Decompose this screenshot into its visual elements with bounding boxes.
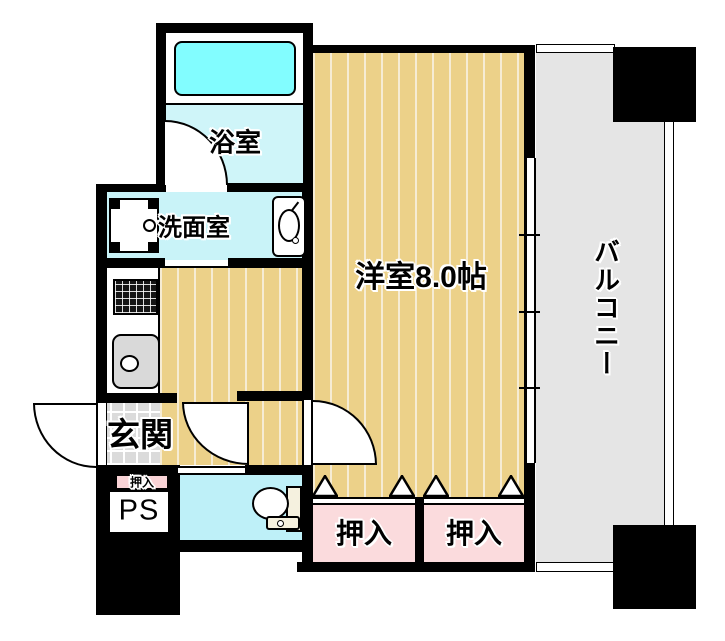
closet-right-label: 押入	[446, 512, 502, 552]
window-tick	[519, 311, 540, 313]
main-room-label: 洋室8.0帖	[355, 252, 487, 296]
hall-closet-label: 押入	[130, 474, 154, 491]
wall-room-right-lower	[524, 463, 535, 572]
wall-bottom	[297, 562, 535, 572]
wall-washroom-bottom-left	[96, 258, 165, 268]
closet-right-door-track	[424, 497, 524, 505]
wall-room-right-upper	[524, 45, 535, 158]
wall-left	[96, 184, 107, 403]
closet-door-triangle	[389, 475, 415, 497]
closet-door-triangle	[423, 475, 449, 497]
balcony-rail-bottom	[536, 562, 615, 572]
gas-stove-icon	[113, 279, 158, 315]
closet-left-label: 押入	[336, 512, 392, 552]
wall-toilet-bottom	[180, 540, 313, 552]
closet-door-triangle	[498, 475, 524, 497]
entrance-door-leaf	[96, 403, 107, 465]
room-door-leaf	[302, 400, 313, 465]
balcony-rail-top	[536, 44, 615, 53]
wall-closet-divider	[415, 497, 424, 562]
window-tick	[519, 234, 540, 236]
closet-door-triangle	[312, 475, 338, 497]
wall-room-top	[305, 45, 535, 53]
washing-machine-pan	[109, 198, 159, 253]
bathtub	[174, 41, 296, 96]
kitchen-sink	[112, 334, 160, 389]
toilet-door-gap	[178, 466, 245, 475]
window-tick	[519, 387, 540, 389]
closet-left-door-track	[313, 497, 415, 505]
balcony-column-top	[613, 47, 696, 122]
balcony-rail-right	[664, 120, 674, 527]
bathroom-label: 浴室	[209, 123, 261, 160]
pipe-space-label: PS	[119, 495, 160, 528]
balcony-label: バルコニー	[588, 238, 625, 378]
washroom-opening-line	[165, 266, 228, 268]
toilet-base	[266, 516, 300, 530]
entrance-label: 玄関	[107, 408, 173, 456]
wall-washroom-bottom-right	[228, 258, 313, 268]
faucet-icon	[291, 202, 299, 212]
balcony-column-bottom	[613, 525, 696, 609]
sink-drain-icon	[120, 355, 139, 372]
washroom-label: 洗面室	[158, 208, 230, 243]
floor-plan: 浴室 洗面室 玄関 押入 PS 洋室8.0帖 押入 押入 バルコニー	[0, 0, 725, 641]
entrance-door-arc	[33, 403, 96, 468]
wall-entrance-top	[96, 393, 177, 403]
washer-drain-icon	[143, 219, 156, 232]
washbasin	[272, 196, 306, 257]
